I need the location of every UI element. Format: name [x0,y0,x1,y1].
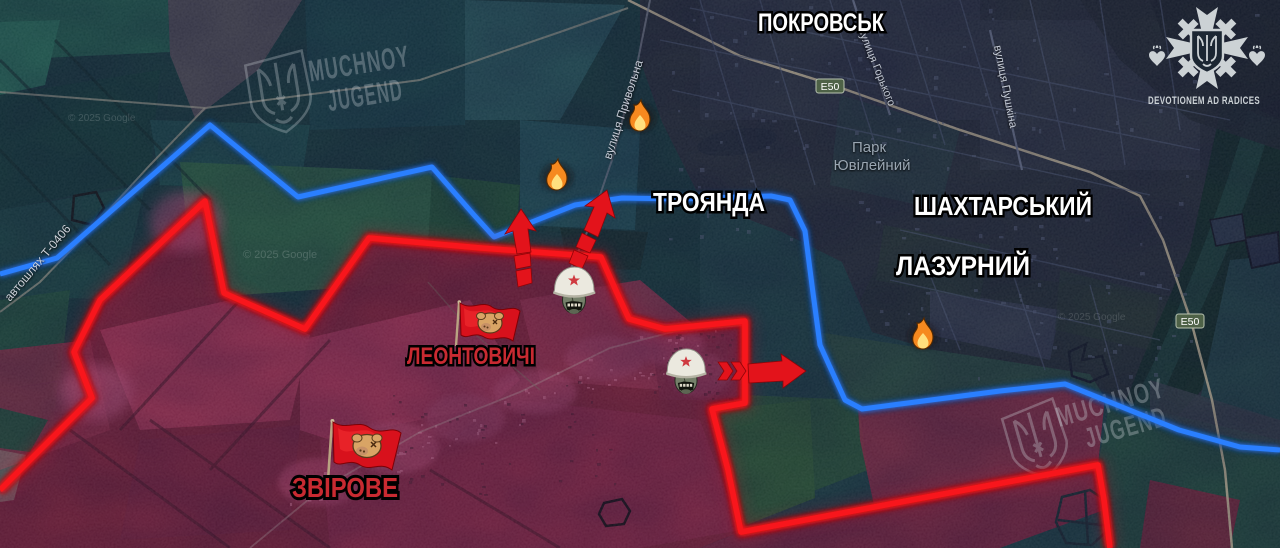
svg-text:© 2025 Google: © 2025 Google [68,113,136,124]
svg-text:ЗВІРОВЕ: ЗВІРОВЕ [292,472,398,503]
svg-text:ПОКРОВСЬК: ПОКРОВСЬК [758,9,885,37]
svg-text:ЛЕОНТОВИЧІ: ЛЕОНТОВИЧІ [407,343,535,370]
svg-text:ЛАЗУРНИЙ: ЛАЗУРНИЙ [896,250,1030,281]
svg-text:Ювілейний: Ювілейний [834,157,911,174]
svg-text:Парк: Парк [852,139,886,156]
svg-text:ТРОЯНДА: ТРОЯНДА [653,187,765,217]
svg-text:ШАХТАРСЬКИЙ: ШАХТАРСЬКИЙ [914,191,1092,221]
svg-text:© 2025 Google: © 2025 Google [243,249,317,261]
svg-text:© 2025 Google: © 2025 Google [1058,312,1126,323]
svg-text:E50: E50 [821,81,840,93]
svg-text:DEVOTIONEM AD RADICES: DEVOTIONEM AD RADICES [1148,95,1260,107]
svg-text:E50: E50 [1181,316,1200,328]
